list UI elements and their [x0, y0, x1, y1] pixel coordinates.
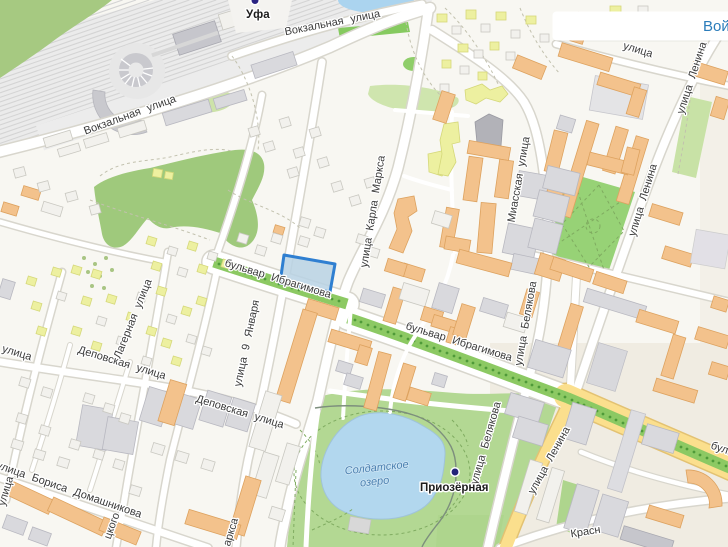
svg-text:Войти: Войти	[703, 18, 728, 35]
svg-text:Уфа: Уфа	[246, 9, 270, 21]
svg-text:Приозёрная: Приозёрная	[420, 482, 488, 494]
